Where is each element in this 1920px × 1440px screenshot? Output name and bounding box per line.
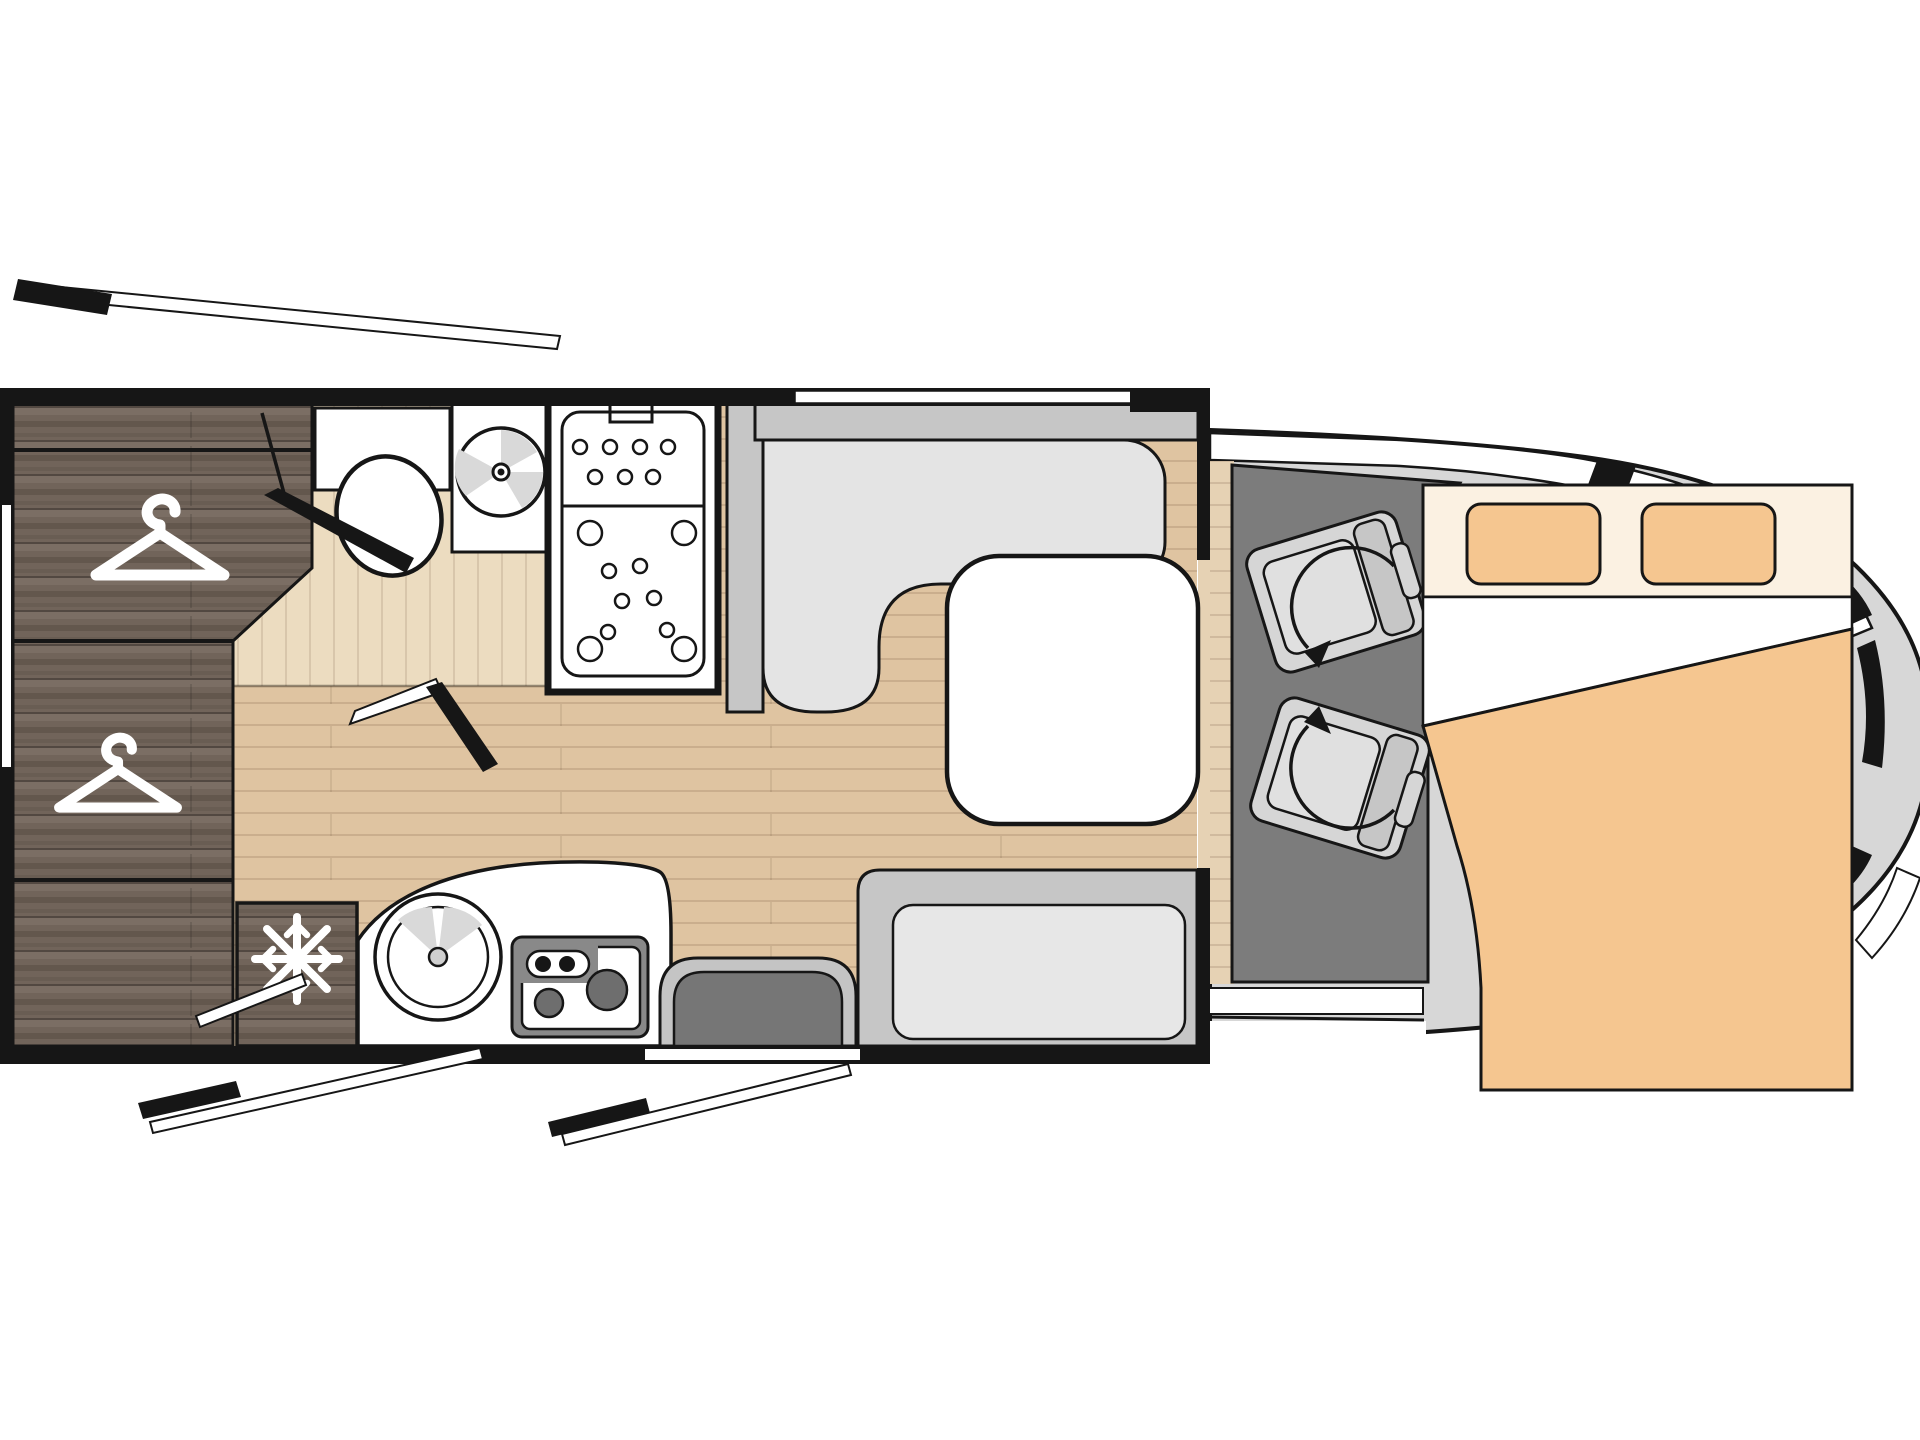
burner-large-icon (587, 970, 627, 1010)
window-left (2, 505, 11, 767)
pillow (1642, 504, 1775, 584)
floorplan-page (0, 0, 1920, 1440)
entry-door-opening (645, 1049, 860, 1060)
wall-bottom (0, 1046, 1210, 1064)
wall-corner-top-right (1130, 388, 1210, 412)
wall-right-upper (1197, 392, 1210, 560)
cab-side-window-bottom (1208, 988, 1423, 1014)
wall-right-lower (1197, 868, 1210, 1064)
dinette-table (947, 556, 1198, 824)
washbasin (455, 428, 545, 516)
cab-step-planks (1210, 461, 1234, 984)
burner-small-icon (535, 989, 563, 1017)
shower (548, 392, 718, 692)
stove (512, 937, 648, 1037)
sofa-side-back (727, 404, 763, 712)
drop-down-bed (1423, 485, 1852, 1090)
floorplan-svg (0, 0, 1920, 1440)
window-top (795, 391, 1133, 403)
fridge (237, 903, 357, 1046)
pillow (1467, 504, 1600, 584)
kitchen-sink (375, 894, 501, 1020)
entry-door (660, 958, 856, 1046)
cab-body-eraser (1208, 1021, 1426, 1047)
bench-seat-cushion (893, 905, 1185, 1039)
